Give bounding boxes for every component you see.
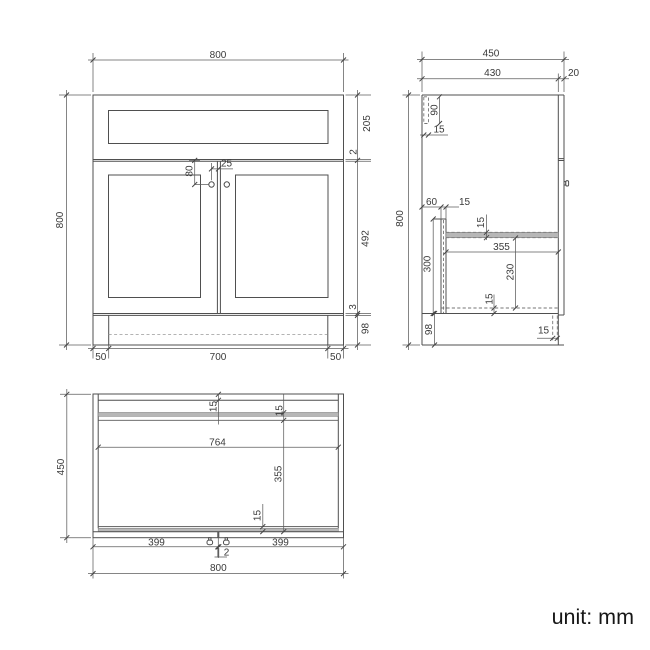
plan-front-rail-band (98, 528, 338, 531)
plan-dim-internal-width: 764 (209, 437, 226, 448)
plan-left-knob-cap (207, 540, 213, 545)
front-door-bottom-lines (93, 314, 344, 316)
unit-label: unit: mm (552, 605, 634, 629)
plan-dim-back-panel-thickness: 15 (209, 401, 220, 413)
front-dimension-lines (67, 60, 358, 350)
plan-dim-internal-depth: 355 (274, 465, 285, 482)
side-dim-carcass-depth: 430 (484, 68, 501, 79)
plan-dim-left-door-width: 399 (148, 537, 165, 548)
front-drawer-panel (109, 111, 329, 144)
side-shelf-band (446, 232, 558, 237)
front-extension-lines (59, 53, 371, 359)
side-dim-plinth-board-thickness: 15 (538, 326, 550, 337)
plan-extension-lines (60, 394, 344, 578)
vanity-technical-drawing: 800 800 205 2 492 3 98 80 25 50 700 50 (0, 0, 650, 650)
side-dimensions: 450 430 20 800 90 15 60 15 300 15 355 23… (395, 49, 579, 351)
front-handle-dim-ticks (192, 158, 221, 187)
side-dim-plinth-height: 98 (424, 324, 435, 336)
front-structure (93, 95, 344, 345)
front-dim-door-height: 492 (361, 230, 372, 247)
side-dim-service-void: 60 (426, 197, 438, 208)
side-dim-support-thickness: 15 (459, 197, 471, 208)
front-dim-inset-left: 50 (95, 352, 107, 363)
plan-dimension-lines (67, 389, 349, 574)
front-view: 800 800 205 2 492 3 98 80 25 50 700 50 (55, 50, 373, 363)
plan-dim-door-gap: 2 (224, 548, 230, 559)
plan-dim-right-door-width: 399 (272, 537, 289, 548)
side-knob-cap (566, 181, 569, 186)
front-left-door-panel (109, 175, 201, 298)
side-dim-depth: 450 (483, 49, 500, 60)
plan-dim-back-rail-thickness: 15 (275, 405, 286, 417)
front-left-handle (209, 182, 214, 187)
front-dim-gap-top: 2 (349, 149, 360, 155)
front-right-door-panel (236, 175, 329, 298)
front-plinth-sides (109, 315, 328, 345)
front-door-center-gap (217, 161, 220, 313)
front-drawer-door-gap-lines (93, 160, 344, 162)
front-dim-plinth-width: 700 (210, 352, 227, 363)
plan-dim-depth: 450 (56, 458, 67, 475)
front-dim-height: 800 (55, 211, 66, 228)
side-support-panel (433, 219, 446, 314)
side-dim-bottom-panel-thickness: 15 (485, 293, 496, 305)
front-dim-gap-bottom: 3 (348, 304, 359, 310)
plan-right-knob (224, 538, 230, 545)
front-dim-handle-drop: 80 (185, 165, 196, 177)
plan-dimensions: 450 15 15 764 355 15 399 399 2 800 (56, 389, 349, 579)
front-right-handle (224, 182, 229, 187)
plan-dimension-ticks (64, 392, 346, 576)
front-cabinet-outline (93, 95, 344, 345)
side-view: 450 430 20 800 90 15 60 15 300 15 355 23… (395, 49, 579, 351)
drawing-canvas: 800 800 205 2 492 3 98 80 25 50 700 50 (0, 0, 650, 650)
front-dim-drawer-height: 205 (362, 115, 373, 132)
plan-right-knob-cap (224, 540, 230, 545)
side-dim-back-rail-thickness: 15 (433, 125, 445, 136)
side-dim-shelf-depth: 355 (493, 242, 510, 253)
front-dimensions: 800 800 205 2 492 3 98 80 25 50 700 50 (55, 50, 373, 363)
front-dim-inset-right: 50 (330, 352, 342, 363)
side-dim-support-height: 300 (423, 255, 434, 272)
side-dim-shelf-thickness: 15 (476, 217, 487, 229)
plan-left-knob (207, 538, 213, 545)
front-dim-plinth-height: 98 (361, 323, 372, 335)
side-dim-height: 800 (395, 210, 406, 227)
side-dim-front-thickness: 20 (568, 68, 580, 79)
side-back-rail-hidden (424, 97, 429, 124)
front-dim-width: 800 (210, 50, 227, 61)
front-dim-handle-offset: 25 (221, 159, 233, 170)
plan-dim-front-rail-thickness: 15 (253, 510, 264, 522)
side-dim-under-shelf-height: 230 (506, 263, 517, 280)
side-dim-back-rail-height: 90 (430, 104, 441, 116)
plan-view: 450 15 15 764 355 15 399 399 2 800 (56, 389, 349, 579)
plan-dim-width: 800 (210, 563, 227, 574)
side-front-gap-lines (558, 159, 564, 161)
